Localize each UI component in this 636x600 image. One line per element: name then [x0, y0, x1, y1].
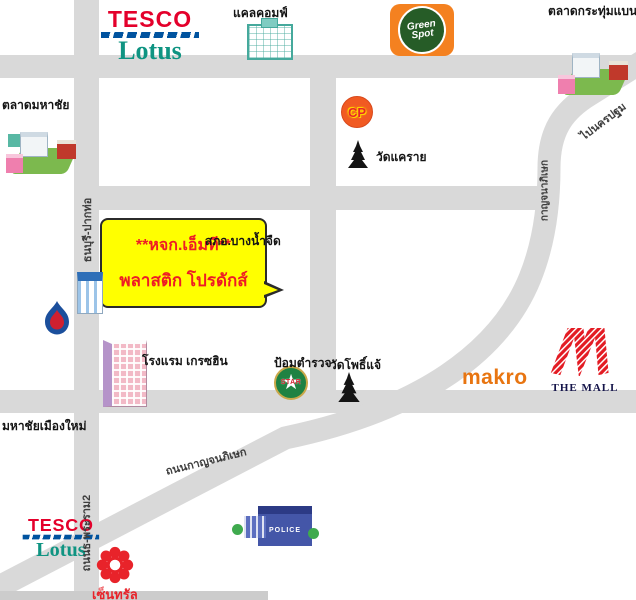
- cp-wordmark: CP: [348, 105, 366, 120]
- krathum-baen-market-icon: [558, 53, 630, 99]
- wat-khae-rai-label: วัดแคราย: [376, 148, 427, 167]
- market-house-pink: [558, 75, 575, 94]
- callout-tail-fill-icon: [264, 284, 278, 295]
- police-building-main: POLICE: [258, 506, 312, 546]
- police-sign: POLICE: [269, 527, 301, 534]
- green-spot-logo: Green Spot: [390, 4, 454, 56]
- hotel-grace-inn-label: โรงแรม เกรซฮิน: [142, 352, 228, 371]
- wat-khae-rai-temple-icon: [346, 140, 370, 173]
- police-station-label: สภอ.บางน้ำจืด: [205, 232, 281, 251]
- central-flower-icon: [96, 546, 134, 589]
- the-mall-logo: THE MALL: [548, 328, 622, 394]
- mahachai-market-icon: [6, 132, 78, 178]
- mahachai-muang-mai-label: มหาชัยเมืองใหม่: [2, 417, 87, 436]
- market-house-red: [609, 61, 628, 80]
- calcomp-building-icon: [247, 24, 293, 60]
- krathum-baen-market-label: ตลาดกระทุ่มแบน: [548, 2, 636, 21]
- star-wordmark: STAR: [276, 379, 306, 386]
- cp-logo: CP: [341, 96, 373, 128]
- the-mall-wordmark: THE MALL: [548, 382, 622, 394]
- mahachai-market-label: ตลาดมหาชัย: [2, 96, 69, 115]
- the-mall-m-icon: [548, 328, 622, 376]
- road-label-rama-2: ถนนธ-พระราม2: [77, 483, 95, 583]
- calcomp-roof-unit: [261, 18, 278, 28]
- road-label-thonburi-pak-tho: ธนบุรี-ปากท่อ: [78, 184, 96, 276]
- tesco-lotus-logo-top: TESCO Lotus: [95, 8, 205, 64]
- police-station-building-icon: POLICE: [232, 502, 312, 546]
- market-shack-teal: [8, 134, 20, 147]
- map-canvas: TESCO Lotus แคลคอมฟ์ Green Spot ตลาดกระท…: [0, 0, 636, 600]
- tree-icon: [232, 524, 243, 535]
- road-label-kanchanaphisek-north: กาญจนาภิเษก: [538, 149, 553, 233]
- tesco-wordmark: TESCO: [95, 8, 205, 31]
- police-box-label: ป้อมตำรวจ: [274, 354, 331, 373]
- market-house-pink: [6, 154, 23, 173]
- ptt-logo: [44, 300, 70, 341]
- lotus-wordmark: Lotus: [95, 38, 205, 64]
- tree-icon: [308, 528, 319, 539]
- market-building: [20, 132, 48, 157]
- callout-line-2: พลาสติก โปรดักส์: [102, 267, 265, 294]
- market-building: [572, 53, 600, 78]
- roadside-building-icon: [77, 272, 103, 314]
- market-house-red: [57, 140, 76, 159]
- green-spot-circle-icon: Green Spot: [395, 3, 449, 57]
- central-wordmark: เซ็นทรัล: [92, 584, 138, 600]
- wat-pho-chae-temple-icon: [336, 372, 362, 407]
- police-building-annex: [244, 516, 266, 538]
- green-spot-word-2: Spot: [411, 28, 434, 40]
- makro-logo: makro: [462, 366, 528, 390]
- hotel-building-icon: [103, 340, 147, 407]
